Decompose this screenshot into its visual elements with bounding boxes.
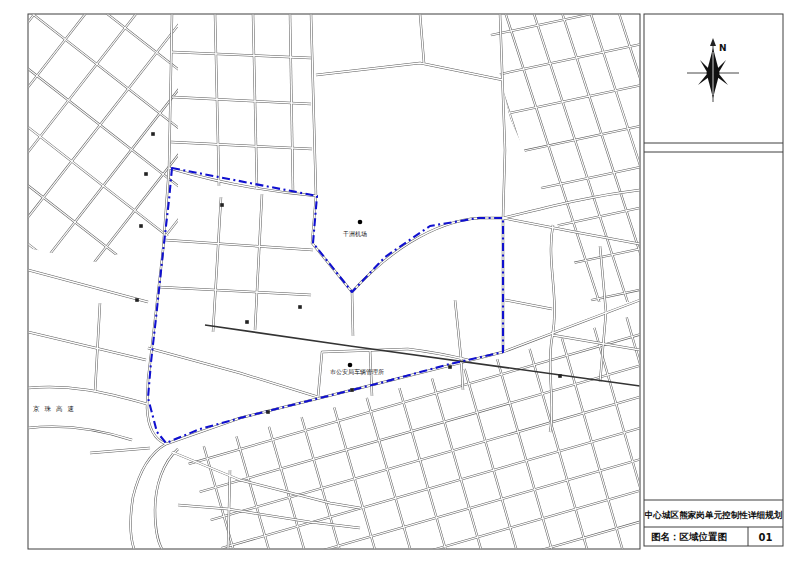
road-segment — [158, 287, 311, 295]
grid-street-line — [6, 553, 800, 566]
grid-street-line — [36, 0, 800, 9]
grid-street-line — [103, 114, 800, 322]
grid-street-line — [544, 0, 800, 566]
grid-street-line — [754, 0, 800, 507]
grid-street-line — [0, 438, 800, 566]
grid-street-line — [642, 0, 800, 566]
sheet-number: 01 — [759, 532, 773, 543]
grid-street-line — [0, 63, 800, 339]
grid-street-line — [119, 193, 800, 401]
railway-line — [205, 325, 640, 386]
grid-casing — [0, 0, 800, 566]
grid-street-line — [215, 0, 524, 566]
grid-street-line — [472, 0, 781, 566]
grid-street-line — [544, 0, 800, 566]
grid-street-line — [184, 7, 460, 566]
grid-street-line — [233, 76, 800, 566]
road-name-char — [350, 388, 354, 392]
grid-street-line — [652, 0, 800, 540]
grid-street-line — [292, 0, 601, 566]
grid-street-line — [0, 0, 345, 470]
grid-street-line — [498, 0, 800, 566]
grid-street-line — [0, 0, 352, 566]
grid-street-line — [0, 178, 800, 454]
grid-street-line — [600, 0, 800, 557]
grid-street-line — [0, 0, 793, 223]
project-title: 中心城区熊家岗单元控制性详细规划 — [645, 510, 783, 520]
grid-casing — [0, 0, 800, 566]
grid-street-line — [0, 0, 800, 252]
road-name-char — [298, 305, 302, 309]
road-name-char — [139, 224, 143, 228]
vehicle-admin-label-dot — [348, 363, 353, 368]
grid-street-line — [0, 0, 749, 107]
grid-street-line — [152, 349, 800, 557]
grid-street-line — [0, 293, 800, 566]
grid-street-line — [0, 438, 800, 566]
road-segment — [171, 142, 312, 149]
road-name-char — [245, 320, 249, 324]
road-segment — [172, 97, 311, 104]
grid-street-line — [94, 75, 800, 283]
road-segment — [90, 448, 150, 453]
grid-street-line — [53, 45, 329, 566]
road-name-char — [266, 410, 270, 414]
grid-street-line — [6, 553, 800, 566]
grid-street-line — [136, 271, 800, 479]
grid-street-line — [0, 0, 61, 248]
grid-street-line — [740, 0, 800, 566]
grid-street-line — [0, 73, 231, 566]
grid-street-line — [53, 45, 329, 566]
grid-street-line — [0, 0, 597, 566]
grid-street-line — [0, 0, 800, 252]
road-segment — [312, 196, 352, 292]
road-name-char — [144, 172, 148, 176]
grid-street-line — [0, 149, 800, 425]
grid-street-line — [233, 76, 800, 566]
grid-street-line — [0, 0, 494, 433]
grid-street-line — [194, 545, 800, 566]
grid-street-line — [575, 0, 800, 565]
map-area: 干洲机场市公安局车辆管理所京珠高速 — [0, 0, 800, 566]
grid-street-line — [184, 7, 460, 566]
road-segment — [213, 197, 221, 332]
road-segment — [311, 14, 316, 196]
grid-street-line — [0, 0, 408, 519]
grid-street-line — [76, 0, 692, 566]
grid-street-line — [369, 0, 678, 566]
grid-street-line — [0, 178, 800, 454]
grid-street-line — [729, 0, 800, 515]
grid-fill — [0, 0, 800, 566]
grid-street-line — [0, 0, 219, 371]
road-segment — [455, 300, 463, 390]
grid-street-line — [0, 322, 800, 566]
grid-street-line — [0, 0, 61, 248]
grid-street-line — [0, 236, 800, 512]
grid-street-line — [0, 0, 219, 371]
sheet-name-label: 图名：区域位置图 — [651, 531, 727, 542]
grid-street-line — [0, 180, 211, 566]
north-label: N — [719, 43, 727, 53]
grid-street-line — [576, 0, 800, 566]
grid-street-line — [348, 0, 624, 566]
grid-street-line — [0, 92, 166, 566]
grid-street-line — [446, 0, 755, 566]
grid-street-line — [395, 0, 704, 566]
grid-street-line — [0, 73, 231, 566]
road-name-char — [135, 298, 139, 302]
grid-street-line — [729, 0, 800, 515]
grid-street-line — [348, 0, 624, 566]
grid-street-line — [420, 0, 729, 566]
grid-street-line — [369, 0, 678, 566]
grid-street-line — [652, 0, 800, 540]
grid-street-line — [0, 0, 408, 519]
grid-street-line — [0, 0, 250, 396]
grid-street-line — [0, 0, 721, 143]
grid-street-line — [0, 0, 282, 420]
road-name-char — [448, 365, 452, 369]
grid-street-line — [677, 0, 800, 532]
grid-street-line — [0, 0, 793, 223]
grid-street-line — [395, 0, 704, 566]
road-segment — [505, 300, 552, 309]
grid-street-line — [0, 322, 800, 566]
grid-street-line — [0, 92, 166, 566]
grid-street-line — [0, 293, 800, 566]
road-casings — [28, 14, 640, 549]
grid-street-line — [446, 0, 722, 566]
grid-region — [0, 0, 800, 566]
grid-street-line — [292, 0, 601, 566]
grid-street-line — [169, 427, 800, 566]
airport-label-dot — [358, 220, 363, 225]
grid-street-line — [119, 193, 800, 401]
plan-sheet: 干洲机场市公安局车辆管理所京珠高速 N 中心城区熊家岗单元控制性详细规划 图名：… — [0, 0, 800, 566]
grid-street-line — [420, 0, 729, 566]
grid-street-line — [0, 0, 282, 420]
road-segment — [352, 218, 503, 292]
grid-street-line — [36, 0, 800, 9]
grid-street-line — [107, 0, 723, 566]
grid-street-line — [0, 0, 777, 70]
road-segment — [352, 218, 503, 292]
grid-street-line — [472, 0, 781, 566]
grid-street-line — [0, 0, 636, 252]
grid-street-line — [0, 0, 785, 194]
drawing-canvas: 干洲机场市公安局车辆管理所京珠高速 N 中心城区熊家岗单元控制性详细规划 图名：… — [0, 0, 800, 566]
grid-street-line — [0, 34, 800, 310]
grid-street-line — [0, 0, 93, 273]
road-segment — [420, 14, 424, 63]
grid-street-line — [0, 149, 800, 425]
grid-street-line — [94, 75, 800, 283]
grid-street-line — [76, 0, 692, 566]
grid-street-line — [0, 63, 800, 339]
grid-street-line — [0, 0, 466, 469]
road-name-char — [151, 132, 155, 136]
grid-street-line — [194, 545, 800, 566]
grid-fill — [0, 0, 800, 566]
road-segment — [255, 194, 262, 330]
grid-street-line — [0, 265, 800, 541]
grid-street-line — [0, 0, 30, 223]
grid-street-line — [677, 0, 800, 532]
road-segment — [131, 444, 166, 549]
grid-street-line — [0, 0, 381, 566]
grid-street-line — [128, 232, 800, 440]
expressway-label: 京珠高速 — [33, 405, 79, 413]
grid-street-line — [0, 409, 800, 566]
grid-street-line — [0, 0, 30, 223]
road-segment — [28, 387, 147, 404]
road-segment — [28, 270, 148, 302]
grid-street-line — [136, 271, 800, 479]
north-arrow: N — [687, 38, 739, 102]
grid-street-line — [152, 349, 800, 557]
grid-street-line — [0, 236, 800, 512]
grid-street-line — [740, 0, 800, 566]
city-blocks-grid — [0, 0, 800, 566]
road-name-char — [558, 374, 562, 378]
grid-street-line — [169, 427, 800, 566]
grid-street-line — [576, 0, 800, 566]
grid-casing — [0, 0, 800, 566]
grid-street-line — [215, 0, 524, 566]
road-segment — [148, 348, 318, 397]
grid-fill — [0, 0, 800, 566]
grid-street-line — [0, 0, 352, 566]
grid-street-line — [0, 0, 692, 179]
road-segment — [28, 427, 132, 440]
grid-street-line — [707, 0, 800, 566]
grid-street-line — [0, 0, 250, 396]
grid-street-line — [139, 2, 755, 566]
grid-street-line — [446, 0, 722, 566]
road-segment — [500, 14, 505, 218]
planning-boundary — [148, 168, 503, 443]
grid-street-line — [754, 0, 800, 507]
grid-street-line — [0, 0, 777, 70]
grid-street-line — [674, 0, 800, 566]
grid-street-line — [0, 101, 133, 566]
grid-street-line — [0, 0, 597, 566]
airport-label: 干洲机场 — [342, 230, 367, 238]
grid-street-line — [0, 0, 93, 273]
grid-street-line — [0, 0, 636, 252]
road-fills — [28, 14, 640, 549]
grid-street-line — [0, 0, 749, 107]
road-segment — [165, 240, 313, 250]
north-arrow-tip — [710, 38, 716, 46]
map-overlays: 干洲机场市公安局车辆管理所京珠高速 — [33, 132, 640, 443]
grid-street-line — [0, 0, 721, 143]
grid-street-line — [128, 232, 800, 440]
grid-street-line — [138, 0, 447, 566]
grid-street-line — [0, 180, 211, 566]
grid-street-line — [0, 0, 494, 433]
road-segment — [352, 292, 353, 336]
road-segment — [28, 332, 146, 360]
grid-street-line — [0, 0, 313, 445]
grid-street-line — [600, 0, 800, 557]
road-segment — [312, 196, 352, 292]
grid-region — [0, 0, 800, 566]
grid-street-line — [0, 101, 133, 566]
road-segment — [316, 63, 503, 80]
grid-street-line — [0, 0, 565, 566]
grid-street-line — [0, 325, 98, 566]
grid-street-line — [138, 0, 447, 566]
grid-street-line — [103, 114, 800, 322]
grid-street-line — [0, 0, 381, 566]
grid-street-line — [575, 0, 800, 565]
grid-street-line — [0, 0, 345, 470]
grid-street-line — [0, 0, 692, 179]
grid-street-line — [69, 0, 800, 166]
grid-street-line — [0, 0, 785, 194]
grid-street-line — [107, 0, 723, 566]
vehicle-admin-label: 市公安局车辆管理所 — [330, 368, 384, 376]
grid-street-line — [707, 0, 800, 566]
road-segment — [155, 449, 178, 549]
grid-street-line — [282, 0, 558, 566]
grid-street-line — [446, 0, 755, 566]
grid-street-line — [318, 0, 627, 566]
grid-street-line — [0, 0, 466, 469]
grid-region — [0, 0, 800, 566]
grid-street-line — [0, 34, 800, 310]
grid-street-line — [139, 2, 755, 566]
grid-street-line — [282, 0, 558, 566]
grid-street-line — [0, 0, 313, 445]
grid-street-line — [0, 325, 98, 566]
grid-street-line — [318, 0, 627, 566]
grid-street-line — [0, 409, 800, 566]
grid-street-line — [0, 0, 565, 566]
road-name-char — [220, 203, 224, 207]
grid-street-line — [642, 0, 800, 566]
grid-street-line — [69, 0, 800, 166]
grid-street-line — [674, 0, 800, 566]
grid-street-line — [498, 0, 800, 566]
map-frame — [28, 14, 640, 549]
